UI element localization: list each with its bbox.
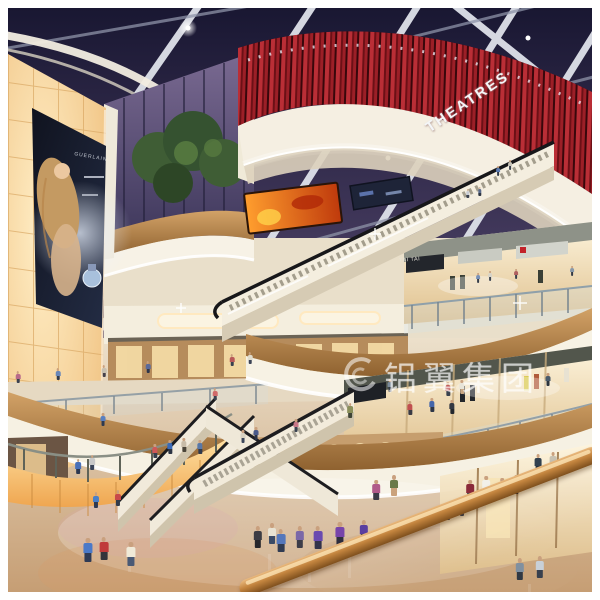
watermark-text: 铝翼集团 [384, 352, 540, 400]
watermark-logo-icon [340, 356, 380, 396]
photo-area: GUERLAIN TAI TAI THEATRES 铝翼集团 [8, 8, 592, 592]
mall-rendering-photo: GUERLAIN TAI TAI THEATRES 铝翼集团 [0, 0, 600, 600]
perfume-bottle [83, 269, 101, 287]
watermark: 铝翼集团 [340, 352, 540, 400]
